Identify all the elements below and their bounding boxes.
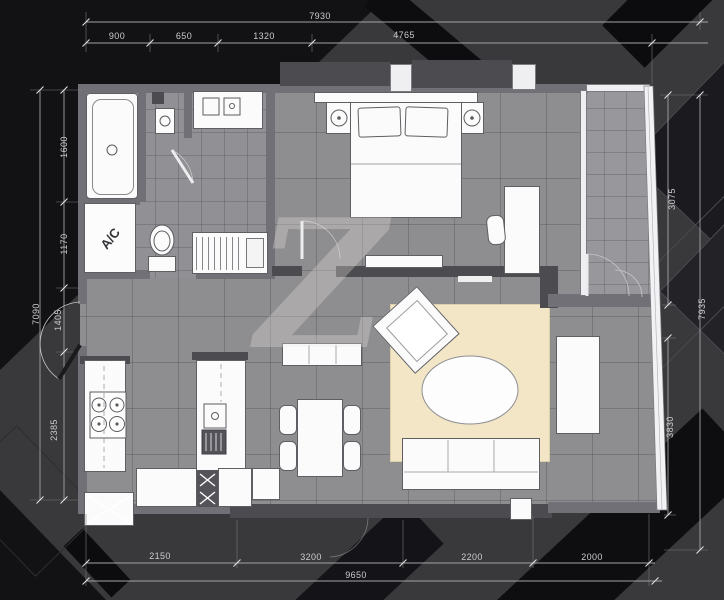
wall-bottom-right: [548, 502, 660, 513]
dim-left-1405: 1405: [52, 298, 64, 342]
dim-left-overall: 7090: [30, 292, 42, 336]
floorplan-screenshot: A/C: [0, 0, 724, 600]
dining-table: [297, 399, 343, 477]
dim-right-3830: 3830: [664, 405, 676, 449]
dining-chair: [279, 405, 297, 435]
column-white-1: [390, 64, 412, 92]
balcony-floor: [582, 86, 654, 302]
wall-switch-box: [152, 92, 164, 104]
kitchen-counter-bottom-2: [218, 468, 252, 507]
dim-top-overall: 7930: [295, 10, 345, 22]
vanity-counter: [193, 91, 263, 129]
dim-top-1320: 1320: [239, 30, 289, 42]
condenser-unit: [84, 492, 134, 526]
balcony-glazing-divider: [580, 90, 587, 296]
dim-bottom-3200: 3200: [286, 551, 336, 563]
nightstand-left: [326, 102, 352, 134]
dim-top-900: 900: [92, 30, 142, 42]
tv-cabinet: [556, 336, 600, 434]
nightstand-right: [460, 102, 484, 134]
desk-chair: [485, 214, 506, 246]
kitchen-counter-left: [84, 360, 126, 472]
dim-top-650: 650: [159, 30, 209, 42]
dining-chair: [343, 441, 361, 471]
sofa: [402, 438, 540, 490]
wall-bath-divider-a: [138, 92, 146, 202]
dim-bottom-overall: 9650: [331, 569, 381, 581]
pillow-left: [357, 106, 401, 137]
dim-left-1170: 1170: [58, 222, 70, 266]
wall-block-top-2: [412, 60, 512, 88]
ac-closet: A/C: [84, 203, 136, 273]
kitchen-island-cap: [192, 352, 248, 360]
dim-bottom-2150: 2150: [135, 550, 185, 562]
kitchen-tall-cabinet: [197, 470, 218, 507]
entry-bench: [510, 498, 532, 520]
dim-bottom-2200: 2200: [447, 551, 497, 563]
bathtub-inner: [92, 99, 134, 195]
dining-chair: [279, 441, 297, 471]
dim-left-1600: 1600: [58, 125, 70, 169]
wall-balcony-bottom: [548, 294, 654, 307]
dim-left-2385: 2385: [48, 408, 60, 452]
wall-bath-divider-b: [184, 92, 192, 138]
wall-block-top-1: [280, 62, 390, 86]
kitchen-counter-bottom-1: [136, 468, 197, 507]
wardrobe-hanger-rail: [196, 237, 242, 270]
dim-right-overall: 7935: [696, 287, 708, 331]
wall-bottom-center: [230, 504, 552, 518]
desk: [504, 186, 540, 274]
column-white-2: [512, 64, 536, 90]
dining-chair: [343, 405, 361, 435]
kitchen-counter-bottom-3: [252, 468, 280, 500]
balcony-glazing-top: [586, 84, 650, 92]
watermark: Z: [256, 196, 386, 374]
dim-top-4765: 4765: [379, 29, 429, 41]
washbasin: [155, 108, 175, 134]
ac-label: A/C: [97, 225, 123, 252]
pillow-right: [404, 106, 448, 137]
threshold-strip: [458, 276, 492, 282]
dim-bottom-2000: 2000: [567, 551, 617, 563]
dim-right-3075: 3075: [666, 177, 678, 221]
toilet-tank: [148, 256, 176, 272]
kitchen-island: [196, 360, 246, 472]
